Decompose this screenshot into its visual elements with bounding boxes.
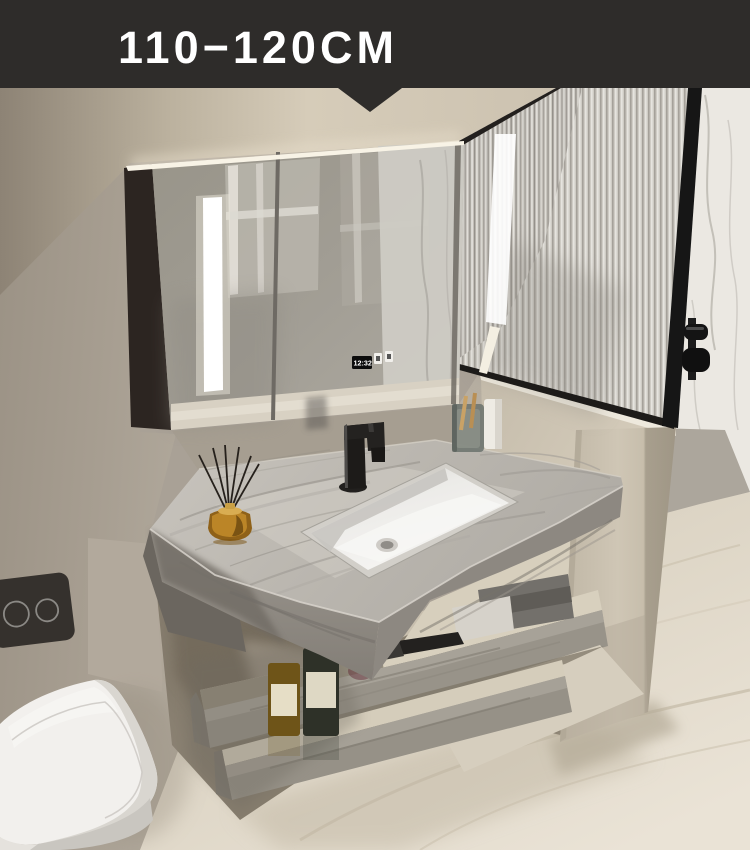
- svg-text:12:32: 12:32: [354, 359, 372, 368]
- svg-text:110−120CM: 110−120CM: [118, 22, 398, 73]
